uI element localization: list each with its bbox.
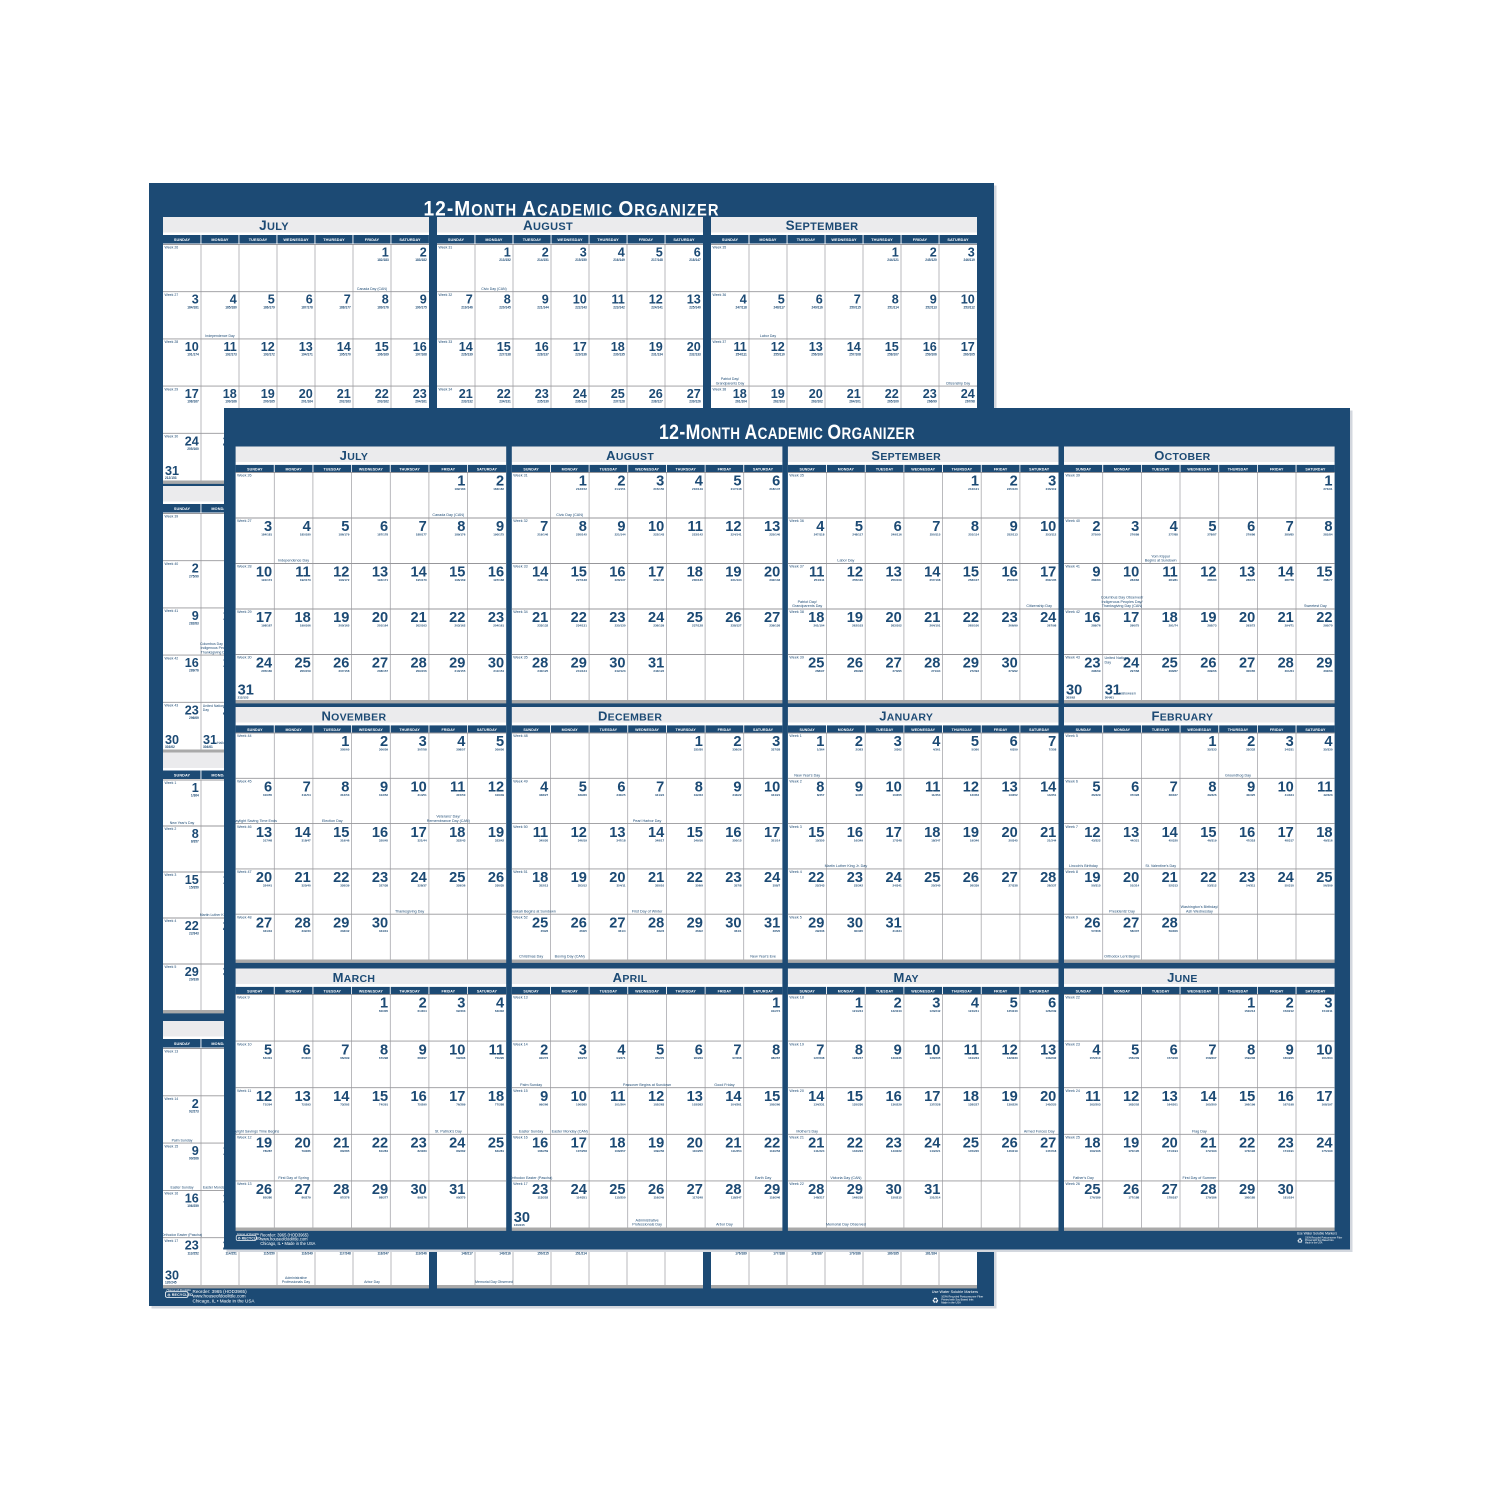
svg-text:TUESDAY: TUESDAY [600, 728, 618, 732]
svg-text:56/309: 56/309 [1323, 884, 1333, 888]
svg-text:151/214: 151/214 [930, 1196, 941, 1200]
svg-text:68/297: 68/297 [418, 1056, 428, 1060]
svg-text:Flag Day: Flag Day [1192, 1130, 1207, 1134]
svg-text:Week 1: Week 1 [789, 734, 801, 738]
svg-text:275/90: 275/90 [189, 574, 199, 578]
svg-text:220/145: 220/145 [576, 533, 587, 537]
svg-text:293/72: 293/72 [1246, 624, 1256, 628]
svg-text:Week 52: Week 52 [513, 915, 528, 919]
svg-text:Week 29: Week 29 [165, 387, 179, 391]
svg-text:329/36: 329/36 [456, 884, 466, 888]
svg-text:Labor Day: Labor Day [837, 559, 854, 563]
svg-text:175/190: 175/190 [1322, 1149, 1333, 1153]
svg-text:New Year's Eve: New Year's Eve [750, 955, 776, 959]
svg-text:Week 4: Week 4 [165, 919, 177, 923]
svg-text:FRIDAY: FRIDAY [365, 238, 380, 242]
svg-text:165/200: 165/200 [1206, 1102, 1217, 1106]
svg-text:207/158: 207/158 [339, 669, 350, 673]
svg-text:287/78: 287/78 [1285, 578, 1295, 582]
svg-text:283/82: 283/82 [1130, 578, 1140, 582]
svg-text:Week 16: Week 16 [165, 1192, 179, 1196]
svg-text:189/176: 189/176 [455, 533, 466, 537]
svg-text:254/111: 254/111 [736, 353, 747, 357]
svg-text:252/113: 252/113 [1007, 533, 1018, 537]
svg-text:263/102: 263/102 [811, 400, 823, 404]
svg-text:228/137: 228/137 [615, 578, 626, 582]
svg-text:170/195: 170/195 [1128, 1149, 1139, 1153]
svg-text:142/223: 142/223 [852, 1149, 863, 1153]
svg-text:205/160: 205/160 [261, 669, 272, 673]
svg-text:144/221: 144/221 [930, 1149, 941, 1153]
svg-text:346/19: 346/19 [578, 838, 588, 842]
svg-text:81/284: 81/284 [379, 1149, 389, 1153]
svg-text:356/9: 356/9 [695, 884, 703, 888]
svg-text:334/31: 334/31 [379, 929, 389, 933]
svg-text:96/269: 96/269 [694, 1056, 704, 1060]
svg-text:243/122: 243/122 [653, 669, 664, 673]
svg-text:22/343: 22/343 [815, 884, 825, 888]
svg-text:259/106: 259/106 [925, 353, 937, 357]
svg-text:Week 4: Week 4 [789, 870, 801, 874]
svg-text:109/256: 109/256 [653, 1149, 664, 1153]
svg-text:FRIDAY: FRIDAY [718, 467, 732, 471]
svg-text:Week 35: Week 35 [789, 474, 804, 478]
svg-text:259/106: 259/106 [1007, 578, 1018, 582]
svg-text:Armed Forces Day: Armed Forces Day [1024, 1130, 1055, 1134]
svg-text:139/226: 139/226 [1007, 1102, 1018, 1106]
svg-text:♻: ♻ [932, 1296, 939, 1305]
svg-text:199/166: 199/166 [300, 624, 311, 628]
svg-text:Week 40: Week 40 [165, 562, 179, 566]
svg-text:Canada Day (CAN): Canada Day (CAN) [357, 287, 387, 291]
svg-text:292/73: 292/73 [1207, 624, 1217, 628]
svg-text:7/358: 7/358 [1049, 748, 1057, 752]
svg-text:257/108: 257/108 [930, 578, 941, 582]
svg-text:42/323: 42/323 [1323, 793, 1333, 797]
svg-text:SUNDAY: SUNDAY [174, 774, 191, 778]
svg-text:Independence Day: Independence Day [278, 559, 309, 563]
svg-text:302/63: 302/63 [1323, 669, 1333, 673]
svg-text:217/148: 217/148 [731, 487, 742, 491]
svg-text:280/85: 280/85 [1285, 533, 1295, 537]
svg-text:WEDNESDAY: WEDNESDAY [557, 238, 583, 242]
svg-text:328/37: 328/37 [418, 884, 428, 888]
svg-text:SUNDAY: SUNDAY [1076, 467, 1092, 471]
svg-text:248/117: 248/117 [773, 305, 785, 309]
svg-text:THURSDAY: THURSDAY [675, 467, 696, 471]
svg-text:Hanukkah Begins at Sundown: Hanukkah Begins at Sundown [506, 909, 555, 913]
svg-text:186/179: 186/179 [263, 305, 275, 309]
svg-text:SATURDAY: SATURDAY [1305, 467, 1326, 471]
svg-text:Week 22: Week 22 [1066, 996, 1081, 1000]
svg-text:TUESDAY: TUESDAY [600, 467, 618, 471]
svg-text:99/266: 99/266 [539, 1102, 549, 1106]
svg-text:187/178: 187/178 [301, 305, 313, 309]
svg-text:WEDNESDAY: WEDNESDAY [635, 467, 659, 471]
svg-text:197/168: 197/168 [493, 578, 504, 582]
svg-text:♻: ♻ [167, 1292, 171, 1297]
svg-text:Week 5: Week 5 [789, 915, 801, 919]
svg-text:75/290: 75/290 [418, 1102, 428, 1106]
svg-text:250/115: 250/115 [930, 533, 941, 537]
svg-text:Week 30: Week 30 [237, 656, 252, 660]
svg-text:Week 13: Week 13 [513, 996, 528, 1000]
svg-text:Week 43: Week 43 [165, 704, 179, 708]
svg-text:45/320: 45/320 [1169, 838, 1179, 842]
svg-text:NOVEMBER: NOVEMBER [321, 708, 386, 723]
svg-text:103/262: 103/262 [692, 1102, 703, 1106]
svg-text:43/322: 43/322 [1091, 838, 1101, 842]
svg-text:115/250: 115/250 [615, 1196, 626, 1200]
svg-text:324/41: 324/41 [263, 884, 273, 888]
svg-text:RECYCLED: RECYCLED [242, 1236, 262, 1240]
svg-text:Week 9: Week 9 [1066, 915, 1078, 919]
svg-text:TUESDAY: TUESDAY [523, 238, 542, 242]
svg-text:307/58: 307/58 [418, 748, 428, 752]
svg-text:120/245: 120/245 [514, 1223, 525, 1227]
svg-text:273/92: 273/92 [1009, 669, 1019, 673]
svg-text:212/153: 212/153 [238, 695, 249, 699]
svg-text:187/178: 187/178 [377, 533, 388, 537]
svg-text:9/356: 9/356 [855, 793, 863, 797]
svg-text:260/105: 260/105 [1045, 578, 1056, 582]
svg-text:223/142: 223/142 [613, 305, 625, 309]
svg-text:133/232: 133/232 [1045, 1056, 1056, 1060]
svg-text:Daylight Savings Time Begins: Daylight Savings Time Begins [231, 1130, 280, 1134]
svg-text:FRIDAY: FRIDAY [913, 238, 928, 242]
svg-text:MAY: MAY [894, 970, 919, 985]
svg-text:242/123: 242/123 [615, 669, 626, 673]
svg-text:239/126: 239/126 [689, 400, 701, 404]
svg-text:Week 36: Week 36 [713, 293, 727, 297]
svg-text:FRIDAY: FRIDAY [994, 728, 1008, 732]
svg-text:119/246: 119/246 [770, 1196, 781, 1200]
svg-text:Orthodox Easter (Pascha): Orthodox Easter (Pascha) [162, 1233, 202, 1237]
svg-text:SATURDAY: SATURDAY [477, 728, 498, 732]
svg-text:258/107: 258/107 [887, 353, 899, 357]
svg-text:46/319: 46/319 [1207, 838, 1217, 842]
svg-text:266/99: 266/99 [1009, 624, 1019, 628]
svg-text:256/109: 256/109 [891, 578, 902, 582]
svg-text:163/202: 163/202 [1128, 1102, 1139, 1106]
svg-text:153/212: 153/212 [1283, 1009, 1294, 1013]
svg-text:325/40: 325/40 [302, 884, 312, 888]
svg-text:261/104: 261/104 [735, 400, 747, 404]
svg-text:52/313: 52/313 [1169, 884, 1179, 888]
svg-text:326/39: 326/39 [340, 884, 350, 888]
svg-text:Memorial Day Observed: Memorial Day Observed [475, 1280, 513, 1284]
svg-text:303/62: 303/62 [1066, 695, 1076, 699]
svg-text:Week 8: Week 8 [1066, 870, 1078, 874]
svg-text:FRIDAY: FRIDAY [441, 467, 455, 471]
svg-text:244/121: 244/121 [887, 258, 899, 262]
svg-text:203/162: 203/162 [455, 624, 466, 628]
svg-text:FRIDAY: FRIDAY [1270, 467, 1284, 471]
svg-text:TUESDAY: TUESDAY [797, 238, 816, 242]
svg-text:Sweetest Day: Sweetest Day [1304, 604, 1327, 608]
svg-text:Boxing Day (CAN): Boxing Day (CAN) [555, 955, 585, 959]
svg-text:261/104: 261/104 [814, 624, 825, 628]
svg-text:Professionals Day: Professionals Day [632, 1223, 662, 1227]
svg-text:162/203: 162/203 [1090, 1102, 1101, 1106]
svg-text:SATURDAY: SATURDAY [1305, 728, 1326, 732]
svg-text:134/231: 134/231 [814, 1102, 825, 1106]
svg-text:364/1: 364/1 [734, 929, 742, 933]
svg-text:Week 32: Week 32 [439, 293, 453, 297]
svg-text:Week 2: Week 2 [789, 780, 801, 784]
svg-text:181/184: 181/184 [1283, 1196, 1294, 1200]
svg-text:SATURDAY: SATURDAY [477, 989, 498, 993]
svg-text:69/296: 69/296 [456, 1056, 466, 1060]
svg-text:345/20: 345/20 [539, 838, 549, 842]
svg-text:FRIDAY: FRIDAY [718, 728, 732, 732]
svg-text:THURSDAY: THURSDAY [323, 238, 345, 242]
svg-text:Lincoln's Birthday: Lincoln's Birthday [1069, 864, 1098, 868]
svg-text:34/331: 34/331 [1285, 748, 1295, 752]
svg-text:Week 3: Week 3 [165, 873, 177, 877]
svg-text:WEDNESDAY: WEDNESDAY [831, 238, 857, 242]
svg-text:Week 14: Week 14 [513, 1042, 528, 1046]
svg-text:Week 19: Week 19 [789, 1042, 804, 1046]
svg-text:152/213: 152/213 [1244, 1009, 1255, 1013]
svg-text:365/0: 365/0 [773, 929, 781, 933]
svg-text:6/359: 6/359 [1010, 748, 1018, 752]
svg-text:16/349: 16/349 [854, 838, 864, 842]
svg-text:Week 46: Week 46 [237, 825, 252, 829]
svg-text:21/344: 21/344 [1047, 838, 1057, 842]
svg-text:SUNDAY: SUNDAY [722, 238, 739, 242]
svg-text:124/241: 124/241 [968, 1009, 979, 1013]
svg-text:51/314: 51/314 [1130, 884, 1140, 888]
svg-text:FRIDAY: FRIDAY [718, 989, 732, 993]
svg-text:312/53: 312/53 [340, 793, 350, 797]
svg-text:238/127: 238/127 [651, 400, 663, 404]
svg-text:128/237: 128/237 [852, 1056, 863, 1060]
svg-text:210/155: 210/155 [455, 669, 466, 673]
svg-text:231/134: 231/134 [731, 578, 742, 582]
svg-text:TUESDAY: TUESDAY [1152, 728, 1170, 732]
svg-text:272/93: 272/93 [970, 669, 980, 673]
svg-text:102/263: 102/263 [653, 1102, 664, 1106]
svg-text:117/248: 117/248 [692, 1196, 703, 1200]
svg-text:300/65: 300/65 [1246, 669, 1256, 673]
svg-text:THURSDAY: THURSDAY [399, 467, 420, 471]
svg-text:236/129: 236/129 [575, 400, 587, 404]
svg-text:FEBRUARY: FEBRUARY [1151, 708, 1213, 723]
svg-text:99/266: 99/266 [189, 1157, 199, 1161]
svg-text:THURSDAY: THURSDAY [952, 467, 973, 471]
svg-text:245/120: 245/120 [925, 258, 937, 262]
svg-text:MARCH: MARCH [333, 970, 376, 985]
svg-text:25/340: 25/340 [931, 884, 941, 888]
svg-text:194/171: 194/171 [301, 353, 313, 357]
svg-text:95/270: 95/270 [655, 1056, 665, 1060]
svg-text:230/135: 230/135 [613, 353, 625, 357]
svg-text:WEDNESDAY: WEDNESDAY [635, 989, 659, 993]
svg-text:180/185: 180/185 [1244, 1196, 1255, 1200]
svg-text:19/346: 19/346 [970, 838, 980, 842]
svg-text:201/164: 201/164 [301, 400, 313, 404]
svg-text:105/260: 105/260 [769, 1102, 780, 1106]
svg-text:257/108: 257/108 [849, 353, 861, 357]
svg-text:FRIDAY: FRIDAY [441, 989, 455, 993]
svg-text:219/146: 219/146 [537, 533, 548, 537]
svg-text:198/167: 198/167 [187, 400, 199, 404]
svg-text:Week 9: Week 9 [237, 996, 249, 1000]
svg-text:202/163: 202/163 [416, 624, 427, 628]
svg-text:215/150: 215/150 [653, 487, 664, 491]
svg-text:Week 26: Week 26 [237, 474, 252, 478]
svg-text:63/302: 63/302 [495, 1009, 505, 1013]
svg-text:267/98: 267/98 [1047, 624, 1057, 628]
svg-text:40/325: 40/325 [1246, 793, 1256, 797]
svg-text:248/117: 248/117 [852, 533, 863, 537]
svg-text:Arbor Day: Arbor Day [716, 1223, 733, 1227]
svg-text:236/129: 236/129 [653, 624, 664, 628]
svg-text:135/230: 135/230 [852, 1102, 863, 1106]
svg-text:Memorial Day Observed: Memorial Day Observed [826, 1223, 866, 1227]
svg-text:92/273: 92/273 [539, 1056, 549, 1060]
svg-text:229/136: 229/136 [575, 353, 587, 357]
svg-text:Week 15: Week 15 [513, 1089, 528, 1093]
svg-text:227/138: 227/138 [576, 578, 587, 582]
svg-text:SUNDAY: SUNDAY [523, 467, 539, 471]
svg-text:55/310: 55/310 [1285, 884, 1295, 888]
svg-text:Week 51: Week 51 [513, 870, 528, 874]
svg-text:193/172: 193/172 [263, 353, 275, 357]
svg-text:123/242: 123/242 [930, 1009, 941, 1013]
svg-text:10/355: 10/355 [893, 793, 903, 797]
svg-text:246/119: 246/119 [963, 258, 975, 262]
svg-text:78/287: 78/287 [263, 1149, 273, 1153]
svg-text:265/100: 265/100 [887, 400, 899, 404]
svg-text:362/3: 362/3 [657, 929, 665, 933]
svg-text:TUESDAY: TUESDAY [1152, 467, 1170, 471]
svg-text:318/47: 318/47 [302, 838, 312, 842]
svg-text:Victoria Day (CAN): Victoria Day (CAN) [830, 1176, 861, 1180]
svg-text:111/254: 111/254 [731, 1149, 742, 1153]
svg-text:89/276: 89/276 [418, 1196, 428, 1200]
svg-text:WEDNESDAY: WEDNESDAY [911, 467, 935, 471]
svg-text:8/357: 8/357 [191, 840, 199, 844]
svg-text:Grandparents Day: Grandparents Day [792, 604, 822, 608]
svg-text:Week 26: Week 26 [165, 246, 179, 250]
svg-text:267/98: 267/98 [965, 400, 975, 404]
svg-text:168/197: 168/197 [1322, 1102, 1333, 1106]
svg-text:Use Water Soluble Markers: Use Water Soluble Markers [932, 1290, 978, 1294]
svg-text:303/62: 303/62 [165, 745, 175, 749]
svg-text:191/174: 191/174 [187, 353, 199, 357]
svg-text:338/27: 338/27 [539, 793, 549, 797]
svg-text:Week 14: Week 14 [165, 1097, 179, 1101]
svg-text:Week 7: Week 7 [1066, 825, 1078, 829]
svg-text:Thanksgiving Day (CAN): Thanksgiving Day (CAN) [1102, 604, 1143, 608]
svg-text:182/183: 182/183 [455, 487, 466, 491]
svg-text:Week 34: Week 34 [439, 387, 453, 391]
svg-text:143/222: 143/222 [891, 1149, 902, 1153]
svg-text:349/16: 349/16 [694, 838, 704, 842]
svg-text:274/91: 274/91 [1323, 487, 1333, 491]
svg-text:264/101: 264/101 [849, 400, 861, 404]
svg-text:WEDNESDAY: WEDNESDAY [911, 989, 935, 993]
svg-text:90/275: 90/275 [456, 1196, 466, 1200]
svg-text:MONDAY: MONDAY [838, 989, 855, 993]
svg-text:240/125: 240/125 [537, 669, 548, 673]
svg-text:SUNDAY: SUNDAY [174, 507, 191, 511]
svg-text:TUESDAY: TUESDAY [876, 728, 894, 732]
svg-text:172/193: 172/193 [1206, 1149, 1217, 1153]
svg-text:164/201: 164/201 [1167, 1102, 1178, 1106]
svg-text:100% Recycled Postconsumer Fib: 100% Recycled Postconsumer Fiber [1305, 1237, 1342, 1240]
svg-text:Week 28: Week 28 [165, 340, 179, 344]
svg-text:New Year's Day: New Year's Day [170, 821, 195, 825]
svg-text:SATURDAY: SATURDAY [673, 238, 695, 242]
svg-text:Orthodox Lent Begins: Orthodox Lent Begins [1104, 955, 1140, 959]
svg-text:Week 5: Week 5 [1066, 734, 1078, 738]
svg-text:39/326: 39/326 [1207, 793, 1217, 797]
svg-text:JANUARY: JANUARY [879, 708, 933, 723]
svg-text:Week 35: Week 35 [713, 246, 727, 250]
svg-text:156/209: 156/209 [1128, 1056, 1139, 1060]
svg-text:Canada Day (CAN): Canada Day (CAN) [432, 513, 464, 517]
svg-text:71/294: 71/294 [263, 1102, 273, 1106]
svg-text:WEDNESDAY: WEDNESDAY [1187, 728, 1211, 732]
svg-text:250/115: 250/115 [849, 305, 861, 309]
svg-text:SUNDAY: SUNDAY [799, 728, 815, 732]
svg-text:235/130: 235/130 [615, 624, 626, 628]
svg-text:344/21: 344/21 [771, 793, 781, 797]
svg-text:310/55: 310/55 [263, 793, 273, 797]
svg-text:THURSDAY: THURSDAY [871, 238, 893, 242]
svg-text:SEPTEMBER: SEPTEMBER [871, 448, 941, 463]
svg-text:138/227: 138/227 [968, 1102, 979, 1106]
svg-text:252/113: 252/113 [925, 305, 937, 309]
svg-text:Week 10: Week 10 [237, 1042, 252, 1046]
svg-text:49/316: 49/316 [1323, 838, 1333, 842]
svg-text:Week 11: Week 11 [237, 1089, 251, 1093]
svg-text:Passover Begins at Sundown: Passover Begins at Sundown [623, 1083, 671, 1087]
svg-text:Week 36: Week 36 [789, 519, 804, 523]
svg-text:Week 21: Week 21 [789, 1136, 804, 1140]
svg-text:288/77: 288/77 [1323, 578, 1333, 582]
svg-text:183/182: 183/182 [493, 487, 504, 491]
svg-text:Week 39: Week 39 [165, 515, 179, 519]
svg-text:THURSDAY: THURSDAY [952, 989, 973, 993]
svg-text:Easter Sunday: Easter Sunday [519, 1130, 543, 1134]
svg-text:15/350: 15/350 [189, 886, 199, 890]
svg-text:299/66: 299/66 [1207, 669, 1217, 673]
svg-text:Ash Wednesday: Ash Wednesday [1186, 909, 1213, 913]
svg-text:80/285: 80/285 [340, 1149, 350, 1153]
svg-text:27/338: 27/338 [1009, 884, 1019, 888]
svg-text:TUESDAY: TUESDAY [324, 467, 342, 471]
svg-text:48/317: 48/317 [1285, 838, 1295, 842]
svg-text:SUNDAY: SUNDAY [247, 467, 263, 471]
svg-text:216/149: 216/149 [613, 258, 625, 262]
svg-text:SATURDAY: SATURDAY [753, 467, 774, 471]
svg-text:359/6: 359/6 [541, 929, 549, 933]
svg-text:216/149: 216/149 [692, 487, 703, 491]
svg-text:31/334: 31/334 [893, 929, 903, 933]
svg-text:319/46: 319/46 [340, 838, 350, 842]
svg-text:RECYCLED: RECYCLED [172, 1293, 194, 1297]
svg-text:249/116: 249/116 [811, 305, 823, 309]
svg-text:167/198: 167/198 [1283, 1102, 1294, 1106]
svg-text:Week 40: Week 40 [1066, 519, 1081, 523]
svg-text:Remembrance Day (CAN): Remembrance Day (CAN) [427, 819, 470, 823]
svg-text:79/286: 79/286 [302, 1149, 312, 1153]
svg-text:306/59: 306/59 [379, 748, 389, 752]
